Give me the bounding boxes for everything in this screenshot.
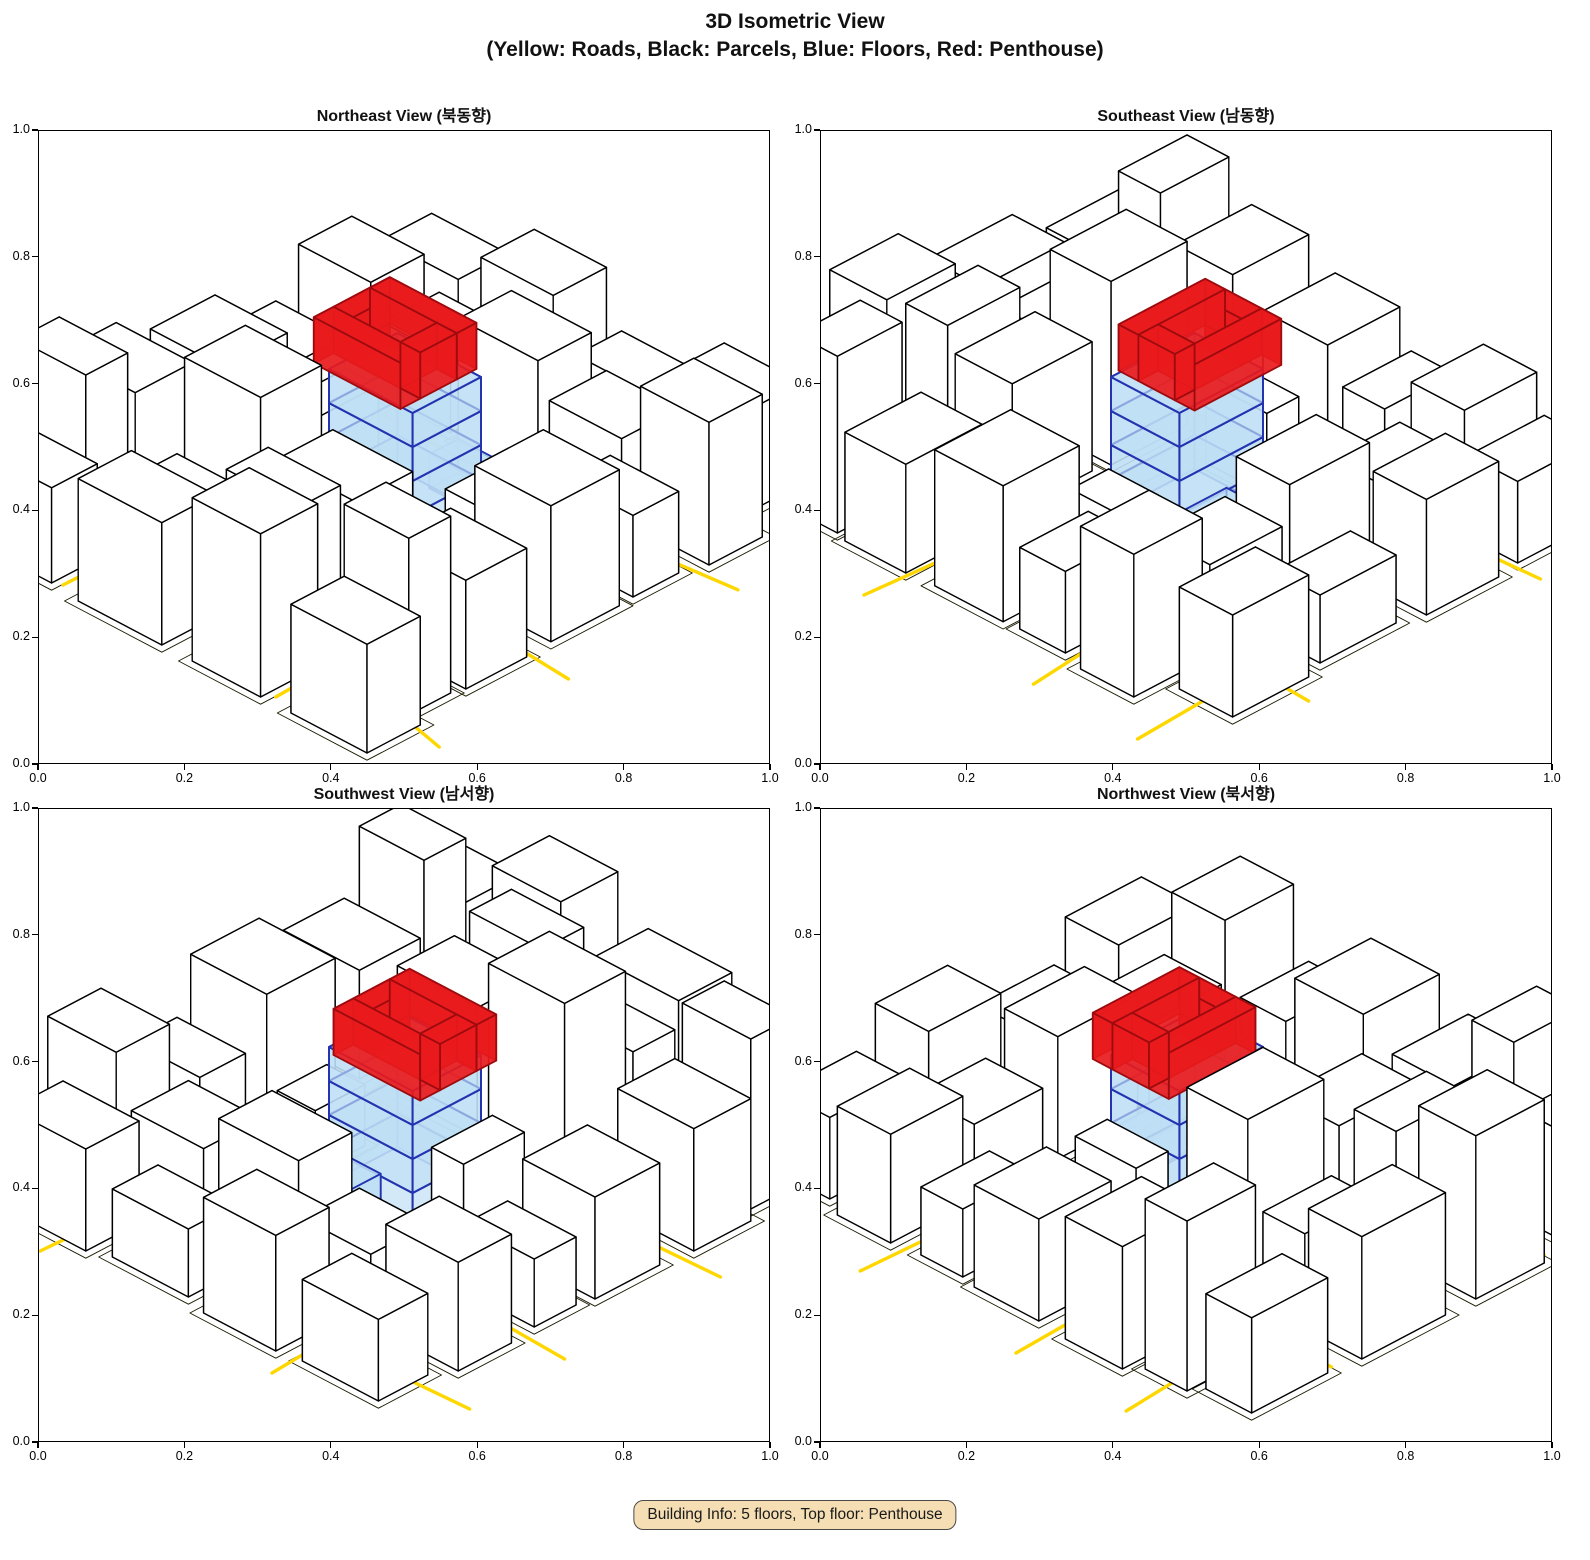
y-axis-tick-label: 0.8 (0, 927, 30, 941)
building-info-badge: Building Info: 5 floors, Top floor: Pent… (633, 1500, 956, 1530)
x-axis-tick-label: 1.0 (753, 771, 787, 785)
figure-title-line2: (Yellow: Roads, Black: Parcels, Blue: Fl… (0, 36, 1590, 64)
y-axis-tick-label: 1.0 (0, 122, 30, 136)
y-axis-tick-mark (32, 1061, 38, 1062)
y-axis-tick-label: 0.2 (778, 1307, 812, 1321)
x-axis-tick-mark (623, 764, 624, 770)
plot-area-southeast (820, 130, 1552, 764)
y-axis-tick-mark (32, 1315, 38, 1316)
y-axis-tick-mark (814, 1315, 820, 1316)
neighbor-building (709, 394, 762, 565)
x-axis-tick-label: 1.0 (1535, 1449, 1569, 1463)
y-axis-tick-mark (32, 510, 38, 511)
y-axis-tick-mark (814, 510, 820, 511)
plot-area-northwest (820, 808, 1552, 1442)
isometric-scene-southeast (821, 131, 1552, 764)
x-axis-tick-mark (184, 1442, 185, 1448)
y-axis-tick-label: 0.4 (778, 1180, 812, 1194)
x-axis-tick-mark (37, 764, 38, 770)
x-axis-tick-mark (1405, 764, 1406, 770)
y-axis-tick-mark (32, 934, 38, 935)
y-axis-tick-label: 0.2 (0, 1307, 30, 1321)
isometric-scene-northeast (39, 131, 770, 764)
x-axis-tick-mark (769, 1442, 770, 1448)
figure-title: 3D Isometric View (Yellow: Roads, Black:… (0, 8, 1590, 63)
subplot-title-southwest: Southwest View (남서향) (38, 780, 770, 804)
y-axis-tick-label: 0.2 (0, 629, 30, 643)
y-axis-tick-mark (32, 129, 38, 130)
x-axis-tick-label: 0.4 (1096, 771, 1130, 785)
y-axis-tick-mark (32, 256, 38, 257)
y-axis-tick-mark (814, 129, 820, 130)
y-axis-tick-label: 0.0 (0, 1434, 30, 1448)
y-axis-tick-label: 0.0 (778, 1434, 812, 1448)
y-axis-tick-mark (814, 807, 820, 808)
x-axis-tick-mark (1259, 764, 1260, 770)
neighbor-building (821, 334, 837, 533)
y-axis-tick-mark (32, 383, 38, 384)
x-axis-tick-label: 0.2 (167, 771, 201, 785)
x-axis-tick-mark (966, 764, 967, 770)
y-axis-tick-label: 0.8 (0, 249, 30, 263)
x-axis-tick-mark (1259, 1442, 1260, 1448)
x-axis-tick-label: 0.0 (21, 1449, 55, 1463)
y-axis-tick-label: 0.0 (0, 756, 30, 770)
x-axis-tick-mark (477, 1442, 478, 1448)
x-axis-tick-mark (819, 764, 820, 770)
y-axis-tick-mark (32, 807, 38, 808)
x-axis-tick-label: 0.6 (460, 1449, 494, 1463)
x-axis-tick-mark (330, 764, 331, 770)
y-axis-tick-label: 0.6 (778, 376, 812, 390)
x-axis-tick-label: 0.4 (314, 771, 348, 785)
x-axis-tick-label: 0.0 (21, 771, 55, 785)
y-axis-tick-mark (814, 1061, 820, 1062)
x-axis-tick-mark (623, 1442, 624, 1448)
y-axis-tick-label: 0.2 (778, 629, 812, 643)
x-axis-tick-label: 0.8 (1389, 771, 1423, 785)
y-axis-tick-mark (32, 1188, 38, 1189)
figure-title-line1: 3D Isometric View (0, 8, 1590, 36)
x-axis-tick-label: 1.0 (753, 1449, 787, 1463)
y-axis-tick-label: 1.0 (778, 800, 812, 814)
x-axis-tick-mark (477, 764, 478, 770)
y-axis-tick-label: 0.4 (0, 1180, 30, 1194)
x-axis-tick-label: 0.8 (607, 1449, 641, 1463)
x-axis-tick-mark (1405, 1442, 1406, 1448)
subplot-title-northwest: Northwest View (북서향) (820, 780, 1552, 804)
y-axis-tick-label: 1.0 (778, 122, 812, 136)
x-axis-tick-label: 0.0 (803, 771, 837, 785)
x-axis-tick-label: 0.4 (1096, 1449, 1130, 1463)
y-axis-tick-label: 0.8 (778, 927, 812, 941)
neighbor-building (751, 1017, 770, 1209)
x-axis-tick-label: 0.0 (803, 1449, 837, 1463)
x-axis-tick-mark (1551, 1442, 1552, 1448)
y-axis-tick-mark (32, 637, 38, 638)
x-axis-tick-mark (966, 1442, 967, 1448)
neighbor-building (1081, 526, 1134, 697)
x-axis-tick-mark (1112, 1442, 1113, 1448)
x-axis-tick-mark (184, 764, 185, 770)
y-axis-tick-label: 0.6 (0, 1054, 30, 1068)
subplot-title-southeast: Southeast View (남동향) (820, 102, 1552, 126)
y-axis-tick-label: 0.0 (778, 756, 812, 770)
neighbor-building (1145, 1199, 1187, 1391)
x-axis-tick-mark (1112, 764, 1113, 770)
x-axis-tick-label: 0.2 (949, 1449, 983, 1463)
x-axis-tick-label: 0.4 (314, 1449, 348, 1463)
plot-area-southwest (38, 808, 770, 1442)
x-axis-tick-mark (330, 1442, 331, 1448)
x-axis-tick-label: 0.2 (949, 771, 983, 785)
x-axis-tick-label: 0.2 (167, 1449, 201, 1463)
x-axis-tick-label: 0.8 (607, 771, 641, 785)
y-axis-tick-mark (814, 383, 820, 384)
x-axis-tick-label: 0.8 (1389, 1449, 1423, 1463)
y-axis-tick-label: 0.4 (0, 502, 30, 516)
y-axis-tick-mark (814, 1188, 820, 1189)
y-axis-tick-label: 0.6 (0, 376, 30, 390)
x-axis-tick-label: 0.6 (1242, 771, 1276, 785)
subplot-title-northeast: Northeast View (북동향) (38, 102, 770, 126)
x-axis-tick-label: 0.6 (1242, 1449, 1276, 1463)
x-axis-tick-mark (819, 1442, 820, 1448)
x-axis-tick-mark (1551, 764, 1552, 770)
y-axis-tick-label: 0.6 (778, 1054, 812, 1068)
y-axis-tick-mark (814, 637, 820, 638)
y-axis-tick-label: 1.0 (0, 800, 30, 814)
plot-area-northeast (38, 130, 770, 764)
y-axis-tick-label: 0.4 (778, 502, 812, 516)
y-axis-tick-label: 0.8 (778, 249, 812, 263)
x-axis-tick-mark (769, 764, 770, 770)
isometric-scene-southwest (39, 809, 770, 1442)
x-axis-tick-label: 1.0 (1535, 771, 1569, 785)
isometric-scene-northwest (821, 809, 1552, 1442)
x-axis-tick-mark (37, 1442, 38, 1448)
y-axis-tick-mark (814, 934, 820, 935)
y-axis-tick-mark (814, 256, 820, 257)
x-axis-tick-label: 0.6 (460, 771, 494, 785)
